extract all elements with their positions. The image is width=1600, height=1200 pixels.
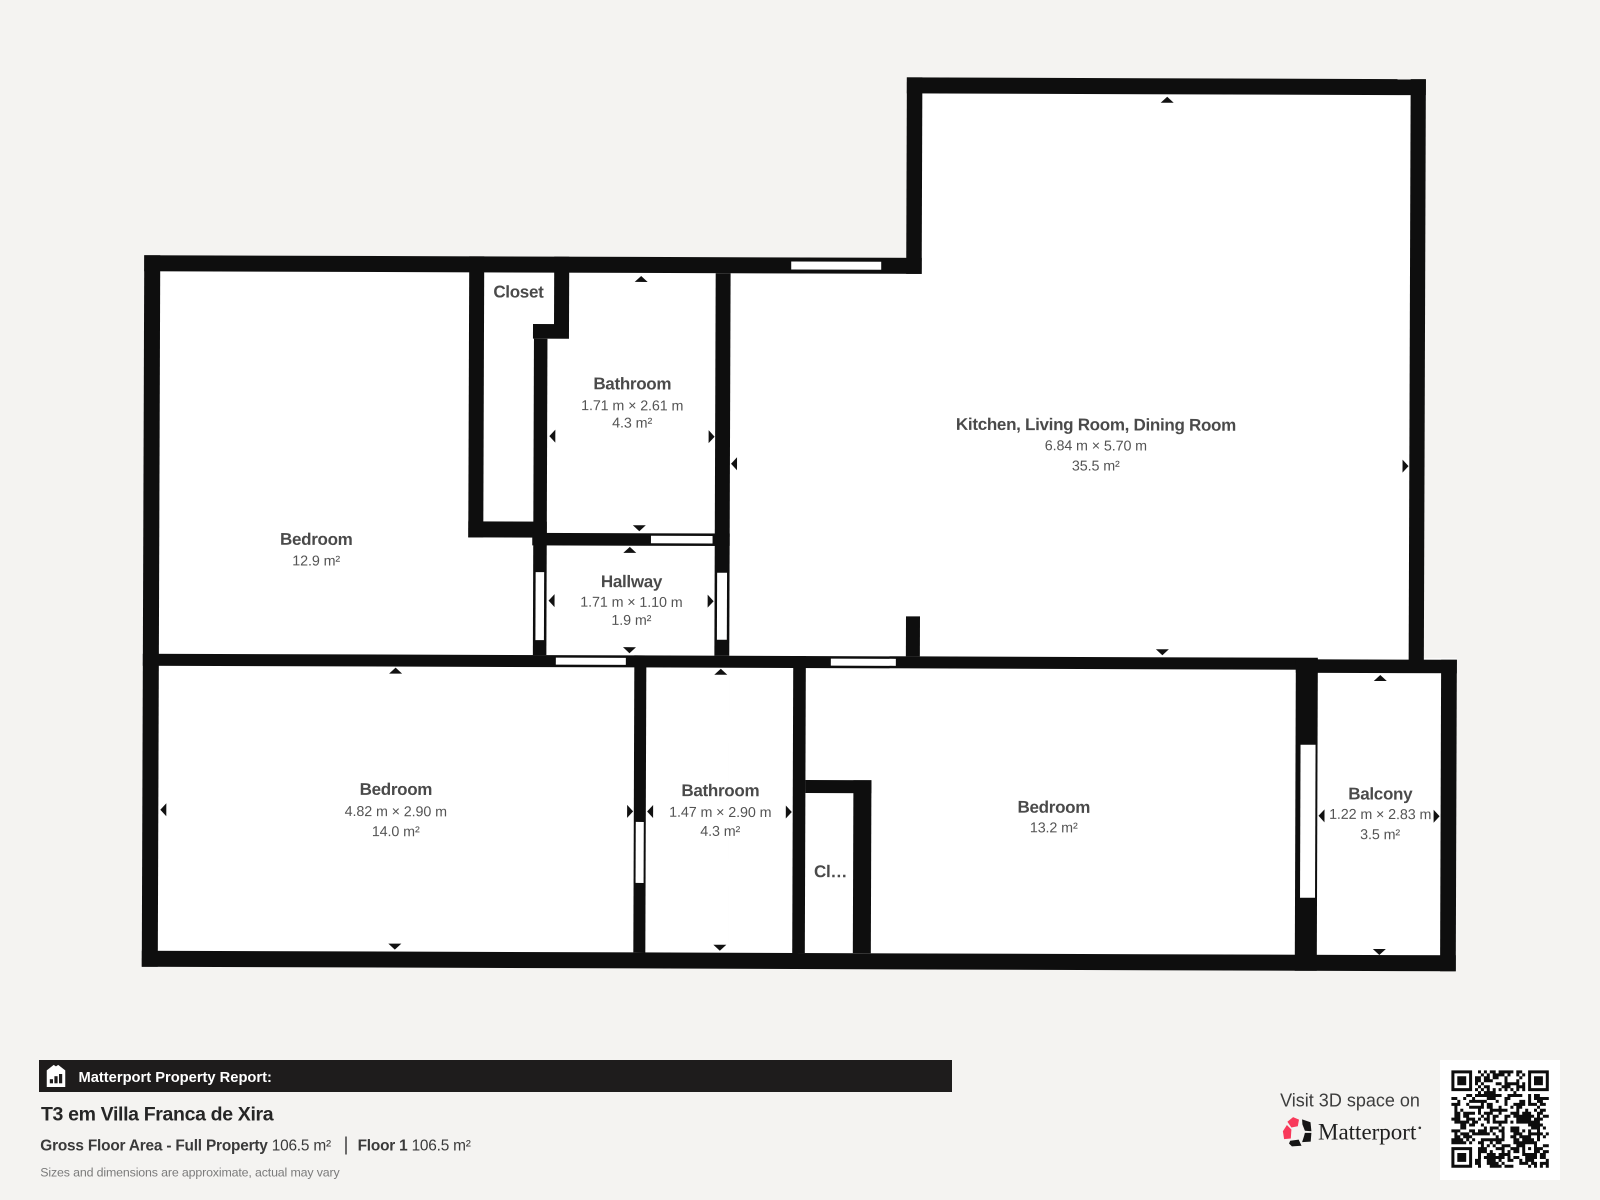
svg-text:1.71 m × 2.61 m: 1.71 m × 2.61 m <box>581 398 683 414</box>
svg-text:6.84 m × 5.70 m: 6.84 m × 5.70 m <box>1045 438 1147 454</box>
svg-text:Floor 1 106.5 m²: Floor 1 106.5 m² <box>358 1138 471 1155</box>
svg-text:Hallway: Hallway <box>601 572 663 591</box>
svg-text:Bedroom: Bedroom <box>280 530 353 549</box>
svg-text:Matterport: Matterport <box>1318 1120 1417 1145</box>
svg-text:Kitchen, Living Room, Dining R: Kitchen, Living Room, Dining Room <box>956 415 1236 435</box>
svg-text:1.9 m²: 1.9 m² <box>611 613 651 629</box>
svg-text:4.3 m²: 4.3 m² <box>700 824 740 840</box>
svg-text:35.5 m²: 35.5 m² <box>1072 458 1120 474</box>
svg-text:Sizes and dimensions are appro: Sizes and dimensions are approximate, ac… <box>40 1166 340 1180</box>
svg-text:Matterport Property Report:: Matterport Property Report: <box>79 1070 272 1086</box>
svg-text:1.47 m × 2.90 m: 1.47 m × 2.90 m <box>669 805 771 821</box>
svg-text:Cl…: Cl… <box>814 862 847 881</box>
svg-text:Bedroom: Bedroom <box>360 780 433 799</box>
svg-text:Balcony: Balcony <box>1348 784 1413 803</box>
svg-text:1.22 m × 2.83 m: 1.22 m × 2.83 m <box>1329 807 1431 823</box>
svg-text:Bedroom: Bedroom <box>1018 798 1091 817</box>
svg-text:Bathroom: Bathroom <box>593 374 671 393</box>
svg-text:Bathroom: Bathroom <box>681 781 759 800</box>
svg-text:4.82 m × 2.90 m: 4.82 m × 2.90 m <box>345 804 447 820</box>
svg-text:T3 em Villa Franca de Xira: T3 em Villa Franca de Xira <box>41 1104 274 1126</box>
svg-text:Gross Floor Area - Full Proper: Gross Floor Area - Full Property 106.5 m… <box>40 1138 331 1155</box>
svg-text:1.71 m × 1.10 m: 1.71 m × 1.10 m <box>580 595 682 611</box>
svg-text:3.5 m²: 3.5 m² <box>1360 827 1400 843</box>
svg-text:14.0 m²: 14.0 m² <box>372 824 420 840</box>
svg-text:Closet: Closet <box>493 282 544 301</box>
svg-text:12.9 m²: 12.9 m² <box>292 553 340 569</box>
svg-text:4.3 m²: 4.3 m² <box>612 416 652 432</box>
svg-text:13.2 m²: 13.2 m² <box>1030 820 1078 836</box>
svg-text:Visit 3D space on: Visit 3D space on <box>1280 1090 1420 1110</box>
